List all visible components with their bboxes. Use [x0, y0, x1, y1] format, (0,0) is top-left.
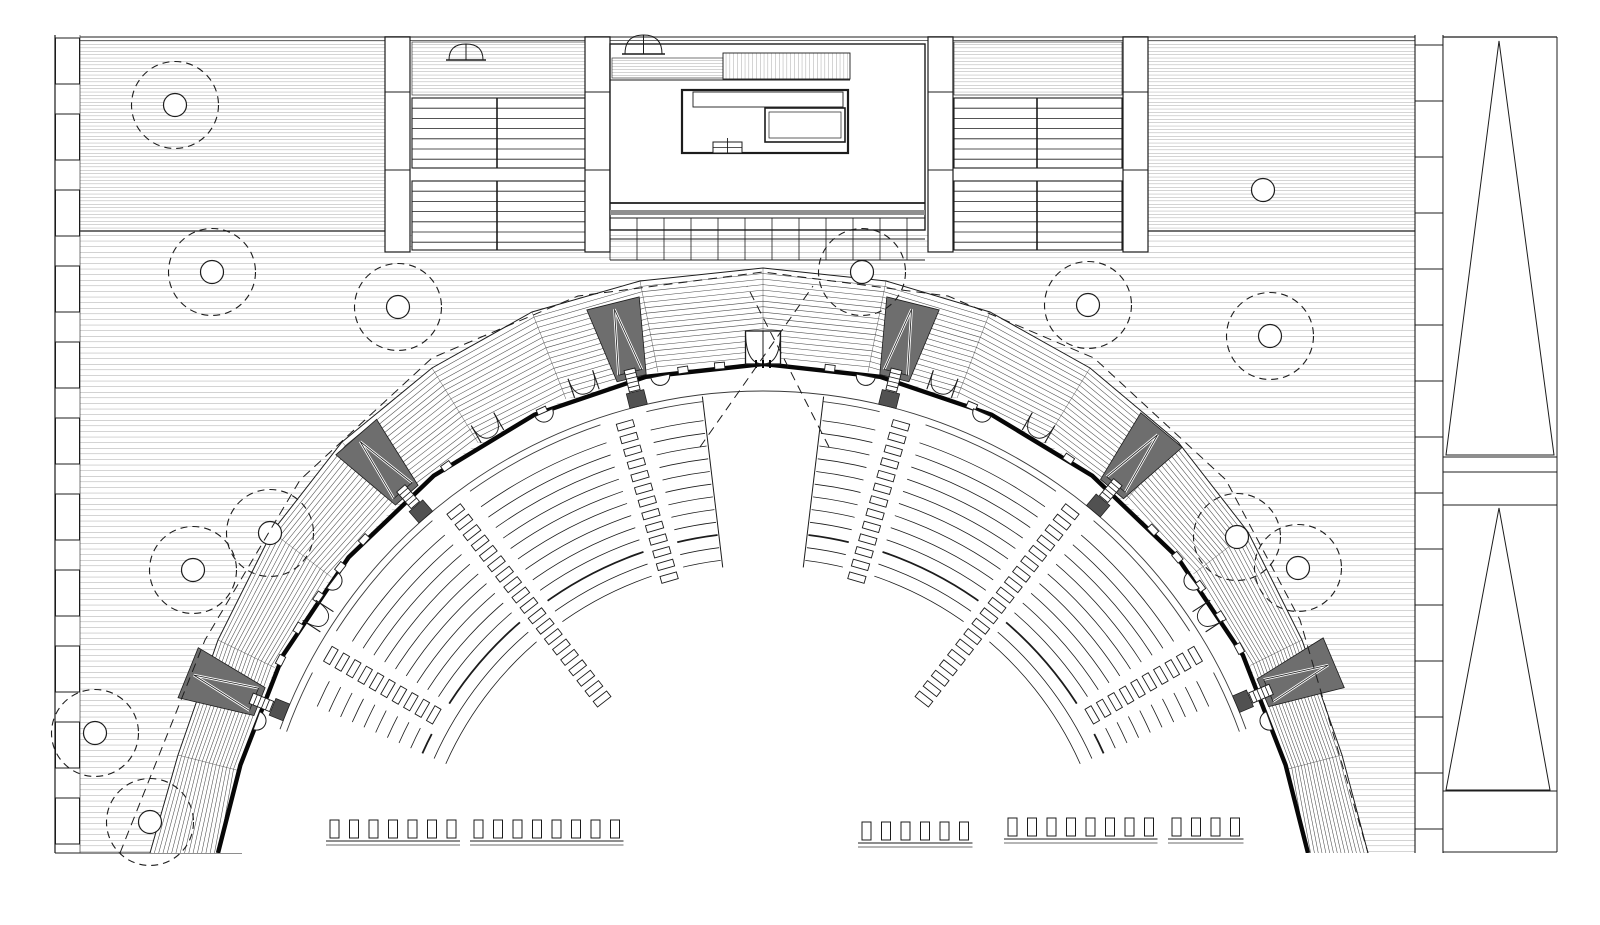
bench-seat [1047, 818, 1056, 836]
bench-seat [1231, 818, 1240, 836]
tree-trunk [259, 522, 282, 545]
stair-flight-upper [412, 98, 585, 168]
stair-flight-lower [412, 181, 585, 250]
wall-pier-block [56, 342, 80, 388]
stair-top-deck [412, 42, 585, 95]
wall-pier-block [56, 190, 80, 236]
wall-pier-block [56, 114, 80, 160]
pavilion-deck-strip [612, 58, 723, 78]
pavilion-gray-band [610, 210, 925, 215]
bench-seat [494, 820, 503, 838]
bench-seat [960, 822, 969, 840]
bench-seat [350, 820, 359, 838]
tree-trunk [1259, 325, 1282, 348]
wall-pier-block [56, 798, 80, 844]
bench-seat [1172, 818, 1181, 836]
bench-seat [1067, 818, 1076, 836]
bench-seat [1028, 818, 1037, 836]
wall-pier-block [56, 646, 80, 692]
bench-seat [1211, 818, 1220, 836]
bench-seat [552, 820, 561, 838]
tree-trunk [1287, 557, 1310, 580]
bench-seat [1125, 818, 1134, 836]
bench-seat [408, 820, 417, 838]
stair-pier [928, 37, 953, 252]
bench-seat [389, 820, 398, 838]
wall-pier-block [56, 418, 80, 464]
stair-block [928, 37, 1148, 252]
stair-top-deck [954, 42, 1122, 95]
right-perimeter-wall [1415, 35, 1443, 853]
bench-seat [921, 822, 930, 840]
apex-gate [746, 331, 781, 368]
bench-seat [901, 822, 910, 840]
site-plan-svg [0, 0, 1600, 925]
bench-seat [513, 820, 522, 838]
room-counter [693, 92, 843, 107]
stair-flight-lower [954, 181, 1122, 250]
wall-pier-block [56, 38, 80, 84]
tree-trunk [851, 261, 874, 284]
bench-seat [369, 820, 378, 838]
bench-seat [1008, 818, 1017, 836]
stair-pier [385, 37, 410, 252]
bench-seat [862, 822, 871, 840]
tree-trunk [84, 722, 107, 745]
wall-pier-block [56, 266, 80, 312]
bench-seat [533, 820, 542, 838]
deck-hatch-top-band [1147, 41, 1415, 231]
bench-seat [940, 822, 949, 840]
tree-trunk [1226, 526, 1249, 549]
bench-seat [611, 820, 620, 838]
central-vomitory [702, 397, 823, 568]
architectural-site-plan [0, 0, 1600, 925]
bench-seat [428, 820, 437, 838]
tree-trunk-small [1252, 179, 1275, 202]
rim-post [825, 364, 836, 372]
ramp-strip [1443, 37, 1557, 852]
stair-pier [585, 37, 610, 252]
bench-seat [474, 820, 483, 838]
bench-seat [330, 820, 339, 838]
bench-seat [882, 822, 891, 840]
tree-trunk [387, 296, 410, 319]
bench-seat [1106, 818, 1115, 836]
wall-pier-block [56, 722, 80, 768]
bench-seat [447, 820, 456, 838]
tree-trunk [1077, 294, 1100, 317]
rim-post [678, 366, 689, 374]
deck-hatch-top-band [80, 41, 385, 231]
tree-trunk [164, 94, 187, 117]
stair-pier [1123, 37, 1148, 252]
wall-pier-block [56, 570, 80, 616]
tree-trunk [139, 811, 162, 834]
bench-seat [1086, 818, 1095, 836]
tree-trunk [182, 559, 205, 582]
bench-seat [591, 820, 600, 838]
bench-seat [1145, 818, 1154, 836]
stair-block [385, 37, 610, 252]
left-perimeter-wall [55, 35, 80, 853]
bench-seat [1192, 818, 1201, 836]
stair-flight-upper [954, 98, 1122, 168]
tree-trunk [201, 261, 224, 284]
bench-seat [572, 820, 581, 838]
pavilion-stair-strip [723, 53, 850, 79]
rim-post [714, 362, 724, 369]
wall-pier-block [56, 494, 80, 540]
room-table [765, 108, 845, 142]
